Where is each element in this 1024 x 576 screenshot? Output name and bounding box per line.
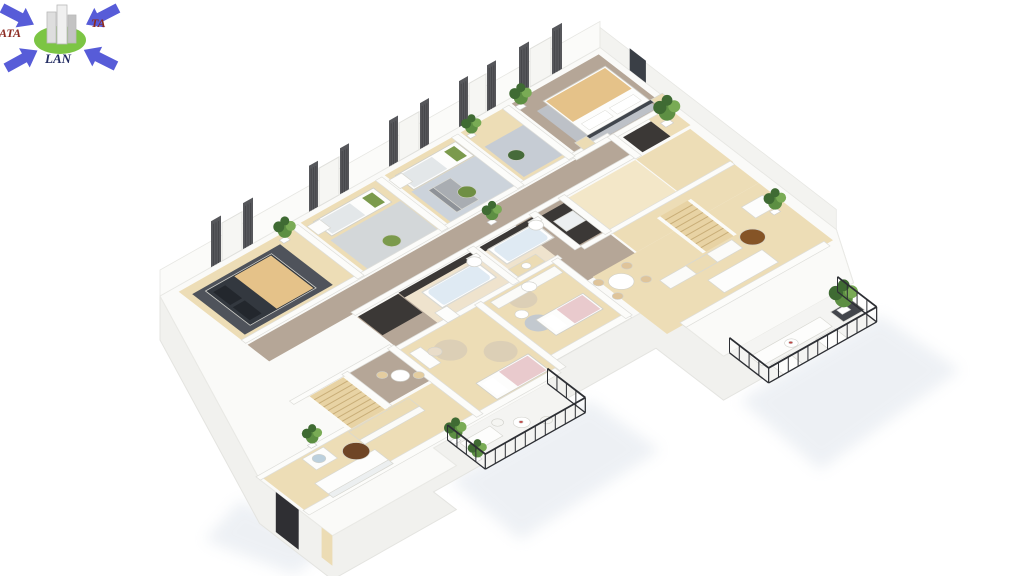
toilet-1-bowl bbox=[467, 257, 482, 267]
dining-table-east bbox=[609, 274, 635, 290]
logo-text-ta: TA bbox=[91, 16, 106, 30]
curtain-r1-right bbox=[243, 198, 253, 250]
logo-text-ata: ATA bbox=[0, 26, 21, 40]
plant-balcony-center-1-leaves bbox=[451, 417, 460, 426]
balcony-flowers bbox=[519, 421, 523, 424]
coffee-table-sw bbox=[343, 443, 370, 460]
chair-sw-1 bbox=[377, 372, 388, 379]
isometric-floorplan-3d-render bbox=[0, 0, 1024, 576]
logo-buildings-icon bbox=[47, 5, 76, 44]
rug-round-se-a-2 bbox=[484, 341, 518, 362]
curtain-r2-right bbox=[340, 143, 349, 194]
curtain-r2-left bbox=[309, 161, 318, 212]
dining-chair-1 bbox=[593, 279, 604, 286]
logo-arrow-bottom-right bbox=[79, 40, 121, 76]
atalan-logo-watermark: ATA TA LAN bbox=[0, 0, 130, 80]
logo-arrow-bottom-left bbox=[1, 41, 43, 78]
curtain-master-right bbox=[552, 23, 562, 75]
pouf-small-room bbox=[508, 150, 525, 161]
floorplan-render-page: ATA TA LAN bbox=[0, 0, 1024, 576]
pouf-kids-1 bbox=[382, 235, 401, 247]
chair-sw-2 bbox=[413, 372, 424, 379]
plant-bedroom-left-leaves bbox=[280, 216, 289, 225]
dining-chair-3 bbox=[612, 293, 623, 300]
coffee-table-east bbox=[740, 229, 766, 245]
plant-small-room-leaves bbox=[467, 114, 475, 122]
plant-master-leaves bbox=[516, 83, 525, 92]
curtain-r3-right bbox=[420, 98, 429, 149]
armchair-sw-cushion bbox=[312, 454, 326, 462]
round-table-sw bbox=[391, 370, 410, 382]
logo-text-lan: LAN bbox=[44, 51, 72, 66]
pouf-kids-2 bbox=[458, 186, 477, 198]
chair-se-b bbox=[515, 310, 529, 318]
plant-corridor-leaves bbox=[488, 201, 496, 209]
plant-ne-corner-leaves bbox=[662, 95, 673, 106]
toilet-2-bowl bbox=[528, 220, 543, 230]
curtain-r4-right bbox=[487, 60, 496, 111]
chair-se-a bbox=[428, 347, 442, 356]
dining-chair-2 bbox=[621, 262, 632, 269]
plant-sw-living-leaves bbox=[308, 424, 316, 432]
dining-chair-4 bbox=[641, 276, 652, 283]
side-table-se-b bbox=[522, 282, 537, 292]
curtain-r3-left bbox=[389, 116, 398, 167]
plant-east-living-leaves bbox=[771, 188, 780, 197]
balcony-right-flowers bbox=[789, 341, 793, 344]
sink-bath-2 bbox=[522, 263, 532, 269]
balcony-chair-1 bbox=[492, 419, 504, 426]
curtain-r1-left bbox=[211, 216, 221, 268]
